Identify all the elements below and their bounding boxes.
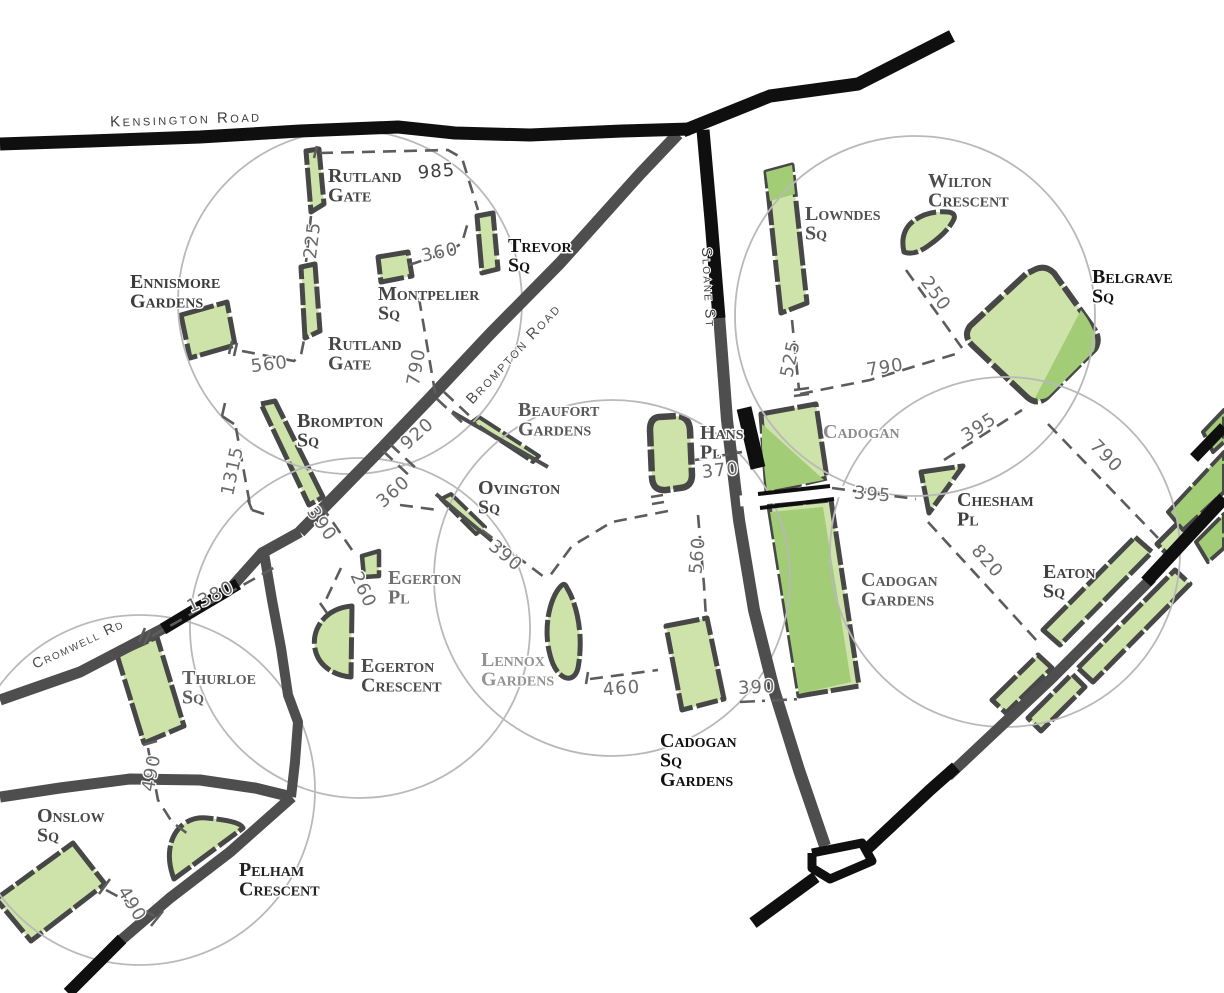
label-ovington-sq: OvingtonSq bbox=[478, 477, 560, 519]
label-thurloe-sq: ThurloeSq bbox=[182, 667, 256, 709]
label-sloane-st: Sloane St bbox=[698, 247, 718, 329]
measure-tick-9 bbox=[651, 495, 663, 497]
label-rutland-gate-south: RutlandGate bbox=[328, 333, 402, 375]
measure-395-belgrave-value: 395 bbox=[958, 408, 1001, 446]
label-cadogan: Cadogan bbox=[823, 421, 900, 443]
measure-260-line bbox=[323, 568, 341, 606]
label-kensington-road: Kensington Road bbox=[110, 108, 262, 130]
eaton-road-middle bbox=[948, 578, 1152, 776]
pelham-road-black bbox=[68, 939, 122, 993]
rutland-gate-north-garden bbox=[306, 149, 324, 212]
label-chesham-pl: CheshamPl bbox=[957, 489, 1034, 531]
measure-225-value: 225 bbox=[300, 221, 325, 261]
egerton-crescent-garden bbox=[314, 606, 352, 677]
montpelier-sq-garden bbox=[378, 252, 412, 282]
label-beaufort-gardens: BeaufortGardens bbox=[518, 399, 600, 441]
label-trevor-sq: TrevorSq bbox=[508, 235, 573, 277]
measure-390-sloane-value: 390 bbox=[738, 676, 776, 699]
knightsbridge-road bbox=[683, 36, 952, 131]
measure-390-sloane-line bbox=[740, 699, 800, 702]
sloane-square-loop bbox=[812, 843, 872, 879]
label-egerton-pl: EgertonPl bbox=[388, 567, 461, 609]
measure-820-value: 820 bbox=[967, 540, 1008, 582]
map-svg: 9852253605607909203601315390260390138049… bbox=[0, 0, 1224, 993]
trevor-sq-garden bbox=[477, 213, 498, 273]
measure-360-ovington-link-line bbox=[400, 505, 438, 510]
label-rutland-gate-north: RutlandGate bbox=[328, 165, 402, 207]
label-lowndes-sq: LowndesSq bbox=[805, 203, 881, 245]
label-onslow-sq: OnslowSq bbox=[37, 805, 105, 847]
measure-tick-10 bbox=[652, 502, 664, 504]
wilton-crescent-garden bbox=[903, 212, 955, 253]
measure-560-ennismore-value: 560 bbox=[250, 352, 290, 377]
measure-525-value: 525 bbox=[776, 338, 804, 379]
layer-measurements: 9852253605607909203601315390260390138049… bbox=[99, 146, 1158, 926]
rutland-gate-south-garden bbox=[301, 264, 320, 338]
measure-790-montpelier-value: 790 bbox=[403, 347, 430, 387]
eaton-road-lower bbox=[867, 767, 956, 849]
kings-road-sw bbox=[753, 877, 816, 923]
knightsbridge-garden-squares-map: 9852253605607909203601315390260390138049… bbox=[0, 0, 1224, 993]
measure-460-value: 460 bbox=[602, 676, 641, 700]
measure-tick-11 bbox=[794, 388, 809, 390]
measure-tick-15 bbox=[320, 603, 327, 613]
label-wilton-crescent: WiltonCrescent bbox=[928, 170, 1009, 212]
label-egerton-crescent: EgertonCrescent bbox=[361, 655, 442, 697]
measure-790-lowndes-value: 790 bbox=[865, 354, 905, 381]
measure-hans-west-line bbox=[549, 511, 668, 577]
measure-395-cadogan-value: 395 bbox=[853, 482, 892, 506]
kensington-road bbox=[0, 127, 690, 144]
hans-pl-garden bbox=[650, 416, 692, 490]
onslow-sq-garden bbox=[0, 843, 105, 941]
measure-tick-16 bbox=[586, 672, 588, 684]
measure-360-trevor-value: 360 bbox=[419, 238, 460, 266]
label-belgrave-sq: BelgraveSq bbox=[1092, 266, 1173, 308]
measure-560-hans-value: 560 bbox=[685, 536, 709, 575]
measure-tick-5 bbox=[252, 510, 264, 514]
measure-490-thurloe-value: 490 bbox=[138, 753, 165, 793]
label-montpelier-sq: MontpelierSq bbox=[378, 283, 480, 325]
measure-tick-12 bbox=[794, 394, 809, 396]
lennox-gardens-garden bbox=[547, 584, 580, 678]
measure-1380-value: 1380 bbox=[184, 577, 238, 618]
measure-985-value: 985 bbox=[417, 159, 456, 183]
label-pelham-crescent: PelhamCrescent bbox=[239, 859, 320, 901]
cadogan-sq-gardens-garden bbox=[666, 618, 724, 710]
measure-tick-4 bbox=[248, 500, 252, 510]
label-brompton-sq: BromptonSq bbox=[297, 410, 383, 452]
label-cadogan-sq-gardens: CadoganSqGardens bbox=[660, 730, 737, 791]
label-cadogan-gardens: CadoganGardens bbox=[861, 569, 938, 611]
label-lennox-gardens: LennoxGardens bbox=[481, 649, 554, 691]
thurloe-street bbox=[264, 553, 298, 797]
layer-parks bbox=[0, 149, 1224, 941]
sloane-street-crossing bbox=[744, 408, 758, 468]
measure-tick-2 bbox=[222, 403, 225, 416]
